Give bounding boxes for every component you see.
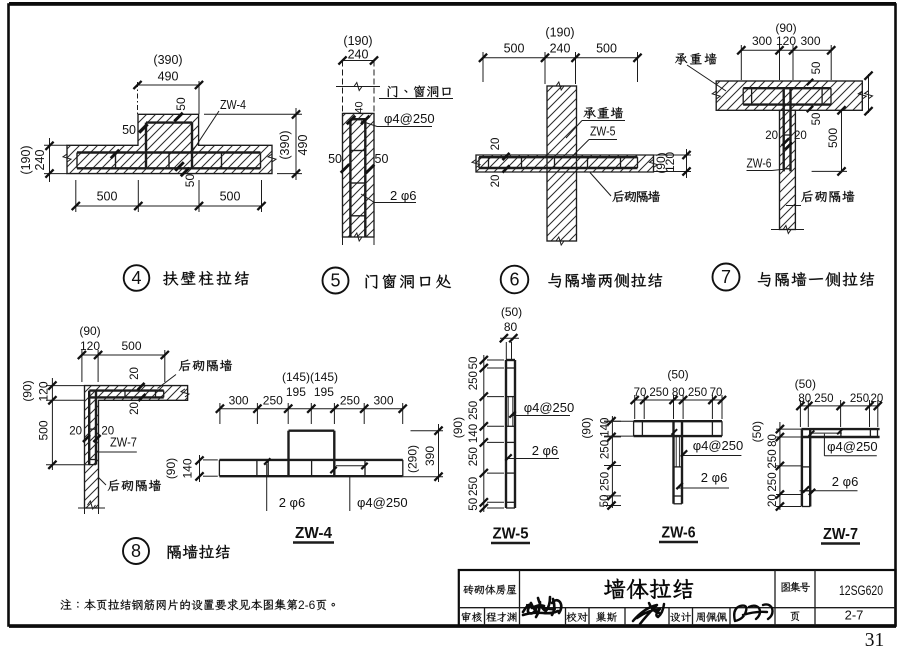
svg-text:20: 20 [129,367,141,380]
svg-text:ZW-6: ZW-6 [747,157,772,171]
svg-text:250: 250 [599,440,611,459]
svg-text:ZW-7: ZW-7 [823,526,858,543]
svg-text:ZW-5: ZW-5 [493,526,529,543]
svg-text:490: 490 [158,70,179,84]
svg-text:): ) [20,380,34,384]
svg-text:): ) [278,130,292,134]
svg-text:300: 300 [229,393,249,407]
svg-text:(145): (145) [282,370,310,384]
svg-text:2 φ6: 2 φ6 [532,443,559,458]
svg-text:120: 120 [776,34,796,48]
svg-text:(390): (390) [153,53,182,67]
svg-text:): ) [579,417,593,421]
svg-text:140: 140 [180,458,194,478]
svg-text:20: 20 [765,130,778,142]
svg-text:φ4@250: φ4@250 [524,400,575,415]
svg-text:8: 8 [131,541,141,561]
svg-text:): ) [750,421,764,425]
svg-text:240: 240 [550,42,571,56]
svg-text:2 φ6: 2 φ6 [279,495,306,510]
svg-text:250: 250 [599,472,611,491]
svg-text:250: 250 [468,447,480,466]
svg-text:2 φ6: 2 φ6 [832,474,859,489]
svg-text:300: 300 [800,34,820,48]
svg-text:ZW-5: ZW-5 [590,125,616,139]
svg-text:0: 0 [278,135,292,142]
svg-text:250: 250 [263,393,283,407]
svg-text:2 φ6: 2 φ6 [390,188,417,203]
svg-text:250: 250 [767,472,779,491]
svg-text:250: 250 [468,477,480,496]
svg-text:500: 500 [121,339,141,353]
svg-text:80: 80 [798,393,811,405]
svg-text:(190): (190) [19,145,33,174]
svg-text:50: 50 [328,152,342,166]
svg-text:ZW-7: ZW-7 [110,436,137,450]
svg-text:70: 70 [634,387,647,399]
svg-text:300: 300 [373,393,393,407]
svg-text:(190): (190) [545,26,574,40]
svg-text:500: 500 [826,128,840,148]
svg-text:50: 50 [468,498,480,511]
svg-text:80: 80 [767,434,779,447]
svg-text:2 φ6: 2 φ6 [701,470,728,485]
svg-text:20: 20 [490,175,502,188]
svg-text:20: 20 [794,130,807,142]
svg-text:500: 500 [596,42,617,56]
svg-text:250: 250 [649,387,668,399]
svg-text:20: 20 [129,402,141,415]
svg-text:): ) [451,417,465,421]
svg-text:7: 7 [721,267,731,287]
svg-text:20: 20 [767,494,779,507]
svg-text:390: 390 [423,446,437,466]
svg-text:250: 250 [814,393,833,405]
svg-text:(145): (145) [310,370,338,384]
svg-text:ZW-4: ZW-4 [220,98,246,112]
svg-text:φ4@250: φ4@250 [827,439,878,454]
svg-text:φ4@250: φ4@250 [357,495,408,510]
svg-text:6: 6 [309,598,316,612]
svg-text:20: 20 [69,426,82,438]
svg-text:6: 6 [509,270,519,290]
svg-text:140: 140 [468,424,480,443]
svg-text:500: 500 [220,190,241,204]
svg-text:φ4@250: φ4@250 [384,111,435,126]
svg-text:250: 250 [767,449,779,468]
svg-text:195: 195 [286,385,306,399]
svg-text:20: 20 [490,138,502,151]
svg-text:12SG620: 12SG620 [839,583,883,598]
svg-text:): ) [164,458,178,462]
svg-text:120: 120 [663,152,677,172]
svg-text:195: 195 [314,385,334,399]
svg-text:250: 250 [468,401,480,420]
svg-text:300: 300 [752,34,772,48]
svg-text:120: 120 [80,339,100,353]
svg-text:(190): (190) [343,34,372,48]
svg-text:500: 500 [504,42,525,56]
svg-text:3: 3 [278,148,292,155]
svg-text:240: 240 [348,48,369,62]
svg-text:20: 20 [871,393,884,405]
svg-text:ZW-4: ZW-4 [295,525,332,542]
svg-text:(50): (50) [795,377,816,391]
svg-text:50: 50 [122,123,136,137]
svg-text:500: 500 [97,190,118,204]
svg-text:50: 50 [811,62,823,75]
svg-text:50: 50 [811,113,823,126]
svg-text:250: 250 [850,393,869,405]
svg-text:50: 50 [599,495,611,508]
svg-text:ZW-6: ZW-6 [662,525,696,542]
svg-text:120: 120 [36,381,50,401]
svg-text:250: 250 [340,393,360,407]
svg-text:50: 50 [468,357,480,370]
svg-text:240: 240 [33,150,47,171]
svg-text:250: 250 [468,371,480,390]
svg-text:80: 80 [672,387,685,399]
svg-text:490: 490 [296,135,310,156]
svg-text:4: 4 [131,268,141,288]
svg-text:(90): (90) [79,324,100,338]
svg-text:(90): (90) [775,21,796,35]
svg-text:50: 50 [375,152,389,166]
svg-text:50: 50 [174,97,188,111]
svg-text:500: 500 [36,420,50,440]
svg-text:φ4@250: φ4@250 [693,438,744,453]
svg-text:5: 5 [330,271,340,291]
svg-text:250: 250 [688,387,707,399]
svg-text:(50): (50) [501,305,522,319]
svg-text:40: 40 [354,101,366,113]
svg-text:): ) [406,445,420,449]
svg-text:140: 140 [599,418,611,437]
svg-text:31: 31 [865,630,885,651]
svg-text:50: 50 [183,174,197,188]
svg-text:80: 80 [504,320,518,334]
svg-text:(50): (50) [667,368,688,382]
svg-text:2-7: 2-7 [845,608,864,623]
svg-text:9: 9 [278,141,292,148]
svg-text:70: 70 [710,387,723,399]
